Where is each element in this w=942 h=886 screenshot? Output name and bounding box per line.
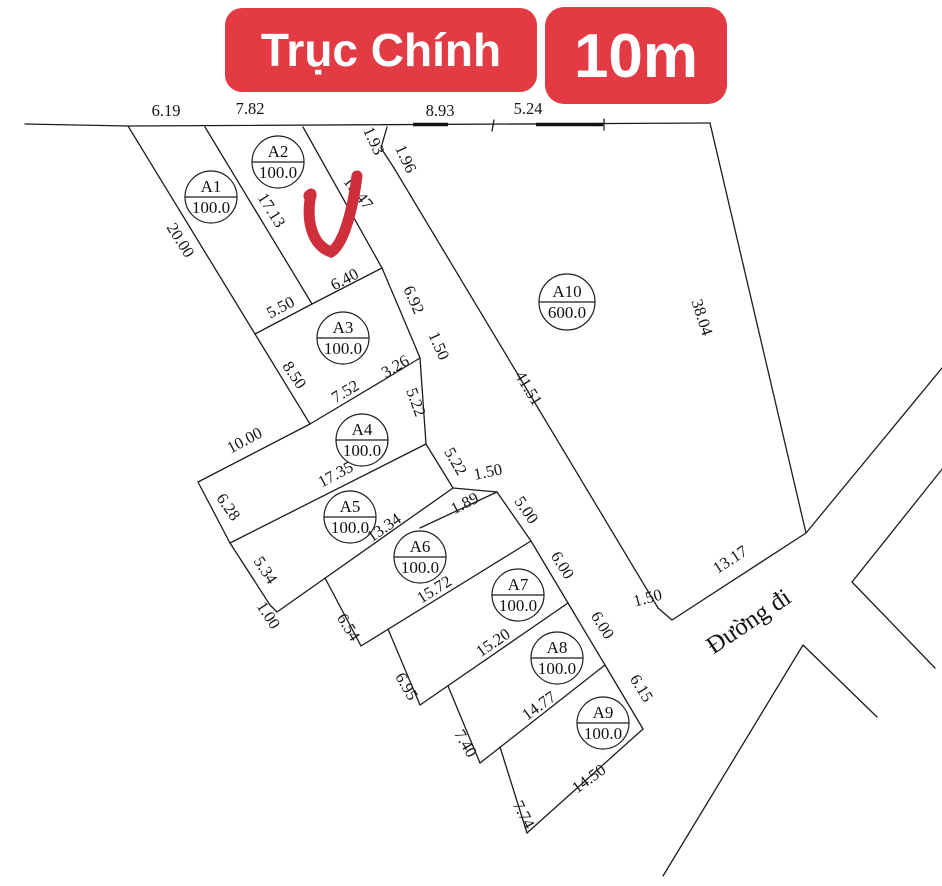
plot-marker-a10: A10 600.0 (539, 274, 595, 330)
dim-label: 1.89 (447, 488, 481, 518)
dim-label: 6.92 (399, 283, 428, 317)
road-branch-ne-edge (852, 582, 935, 668)
dim-label: 6.19 (152, 101, 181, 120)
dim-label: 5.24 (514, 99, 543, 118)
plot-area-label: 100.0 (499, 596, 537, 615)
plot-id-label: A5 (340, 497, 361, 516)
chain-150-cut (453, 488, 497, 492)
dim-label: 5.00 (511, 493, 543, 528)
dim-label: 6.00 (547, 548, 578, 583)
plot-marker-a4: A4 100.0 (336, 414, 388, 466)
dim-label: 6.40 (327, 264, 361, 294)
dim-label: 8.93 (426, 101, 455, 120)
plot-marker-a3: A3 100.0 (317, 312, 369, 364)
dim-label: 17.35 (315, 457, 357, 491)
plot-id-label: A9 (593, 703, 614, 722)
road-se-upper-edge (852, 468, 942, 582)
dim-label: 20.00 (163, 219, 199, 261)
plot-area-label: 100.0 (538, 659, 576, 678)
dim-label: 17.13 (254, 189, 290, 231)
boundary-lines (25, 119, 942, 876)
dim-label: 6.54 (333, 610, 364, 645)
plot-marker-a2: A2 100.0 (252, 136, 304, 188)
plot-area-label: 100.0 (259, 163, 297, 182)
plot-id-label: A10 (552, 282, 581, 301)
dim-label: 1.50 (424, 329, 453, 363)
plot-marker-a6: A6 100.0 (394, 531, 446, 583)
dim-label: 1.00 (253, 598, 285, 633)
plot-id-label: A8 (547, 638, 568, 657)
tick-1 (492, 120, 494, 131)
plot-marker-a5: A5 100.0 (324, 491, 376, 543)
dimension-labels: 6.19 7.82 8.93 5.24 1.93 1.96 20.00 17.1… (152, 99, 751, 832)
dim-label: 10.00 (224, 423, 266, 457)
dim-label: 7.82 (236, 99, 265, 118)
checkmark-tip (304, 190, 317, 203)
dim-label: 5.22 (440, 444, 471, 479)
plot-area-label: 100.0 (584, 724, 622, 743)
plot-area-label: 100.0 (331, 518, 369, 537)
dim-label: 13.34 (363, 509, 404, 546)
dim-label: 7.52 (328, 376, 363, 407)
plot-area-label: 100.0 (192, 198, 230, 217)
plot-id-label: A4 (352, 420, 373, 439)
road-banner: Trục Chính 10m (225, 7, 727, 104)
plot-a1-left-edge (128, 126, 255, 334)
dim-label: 8.50 (279, 358, 311, 393)
plot-id-label: A6 (410, 537, 431, 556)
plot-a10-bottom-road-edge (672, 368, 942, 620)
plot-area-label: 100.0 (324, 339, 362, 358)
plot-area-label: 100.0 (343, 441, 381, 460)
plot-a10-bottom-corner-cut (658, 608, 672, 620)
cadastral-map-page: 6.19 7.82 8.93 5.24 1.93 1.96 20.00 17.1… (0, 0, 942, 886)
cadastral-map-svg: 6.19 7.82 8.93 5.24 1.93 1.96 20.00 17.1… (0, 0, 942, 886)
plot-marker-a1: A1 100.0 (185, 171, 237, 223)
road-name-label: Đường đi (702, 584, 796, 660)
plot-a10-right-edge (710, 123, 806, 533)
dim-label: 6.15 (626, 671, 657, 706)
road-branch-sw-edge (663, 645, 877, 876)
dim-label: 13.17 (709, 541, 750, 577)
dim-label: 5.50 (263, 292, 297, 322)
plot-marker-a8: A8 100.0 (531, 632, 583, 684)
dim-label: 6.00 (587, 608, 618, 643)
dim-label: 3.26 (378, 351, 413, 382)
road-name-banner-text: Trục Chính (261, 24, 501, 76)
road-width-banner-text: 10m (574, 22, 698, 91)
dim-label: 5.22 (402, 385, 430, 419)
plot-id-label: A1 (201, 177, 222, 196)
dim-label: 1.50 (631, 585, 664, 611)
plot-area-label: 600.0 (548, 303, 586, 322)
plot-id-label: A2 (268, 142, 289, 161)
dim-label: 38.04 (687, 297, 717, 338)
dim-label: 14.77 (518, 687, 559, 724)
plot-marker-a7: A7 100.0 (492, 569, 544, 621)
plot-marker-a9: A9 100.0 (577, 697, 629, 749)
plot-area-label: 100.0 (401, 558, 439, 577)
plot-id-label: A3 (333, 318, 354, 337)
plot-id-label: A7 (508, 575, 529, 594)
dim-label: 1.50 (472, 459, 504, 484)
dim-label: 41.51 (511, 367, 546, 409)
